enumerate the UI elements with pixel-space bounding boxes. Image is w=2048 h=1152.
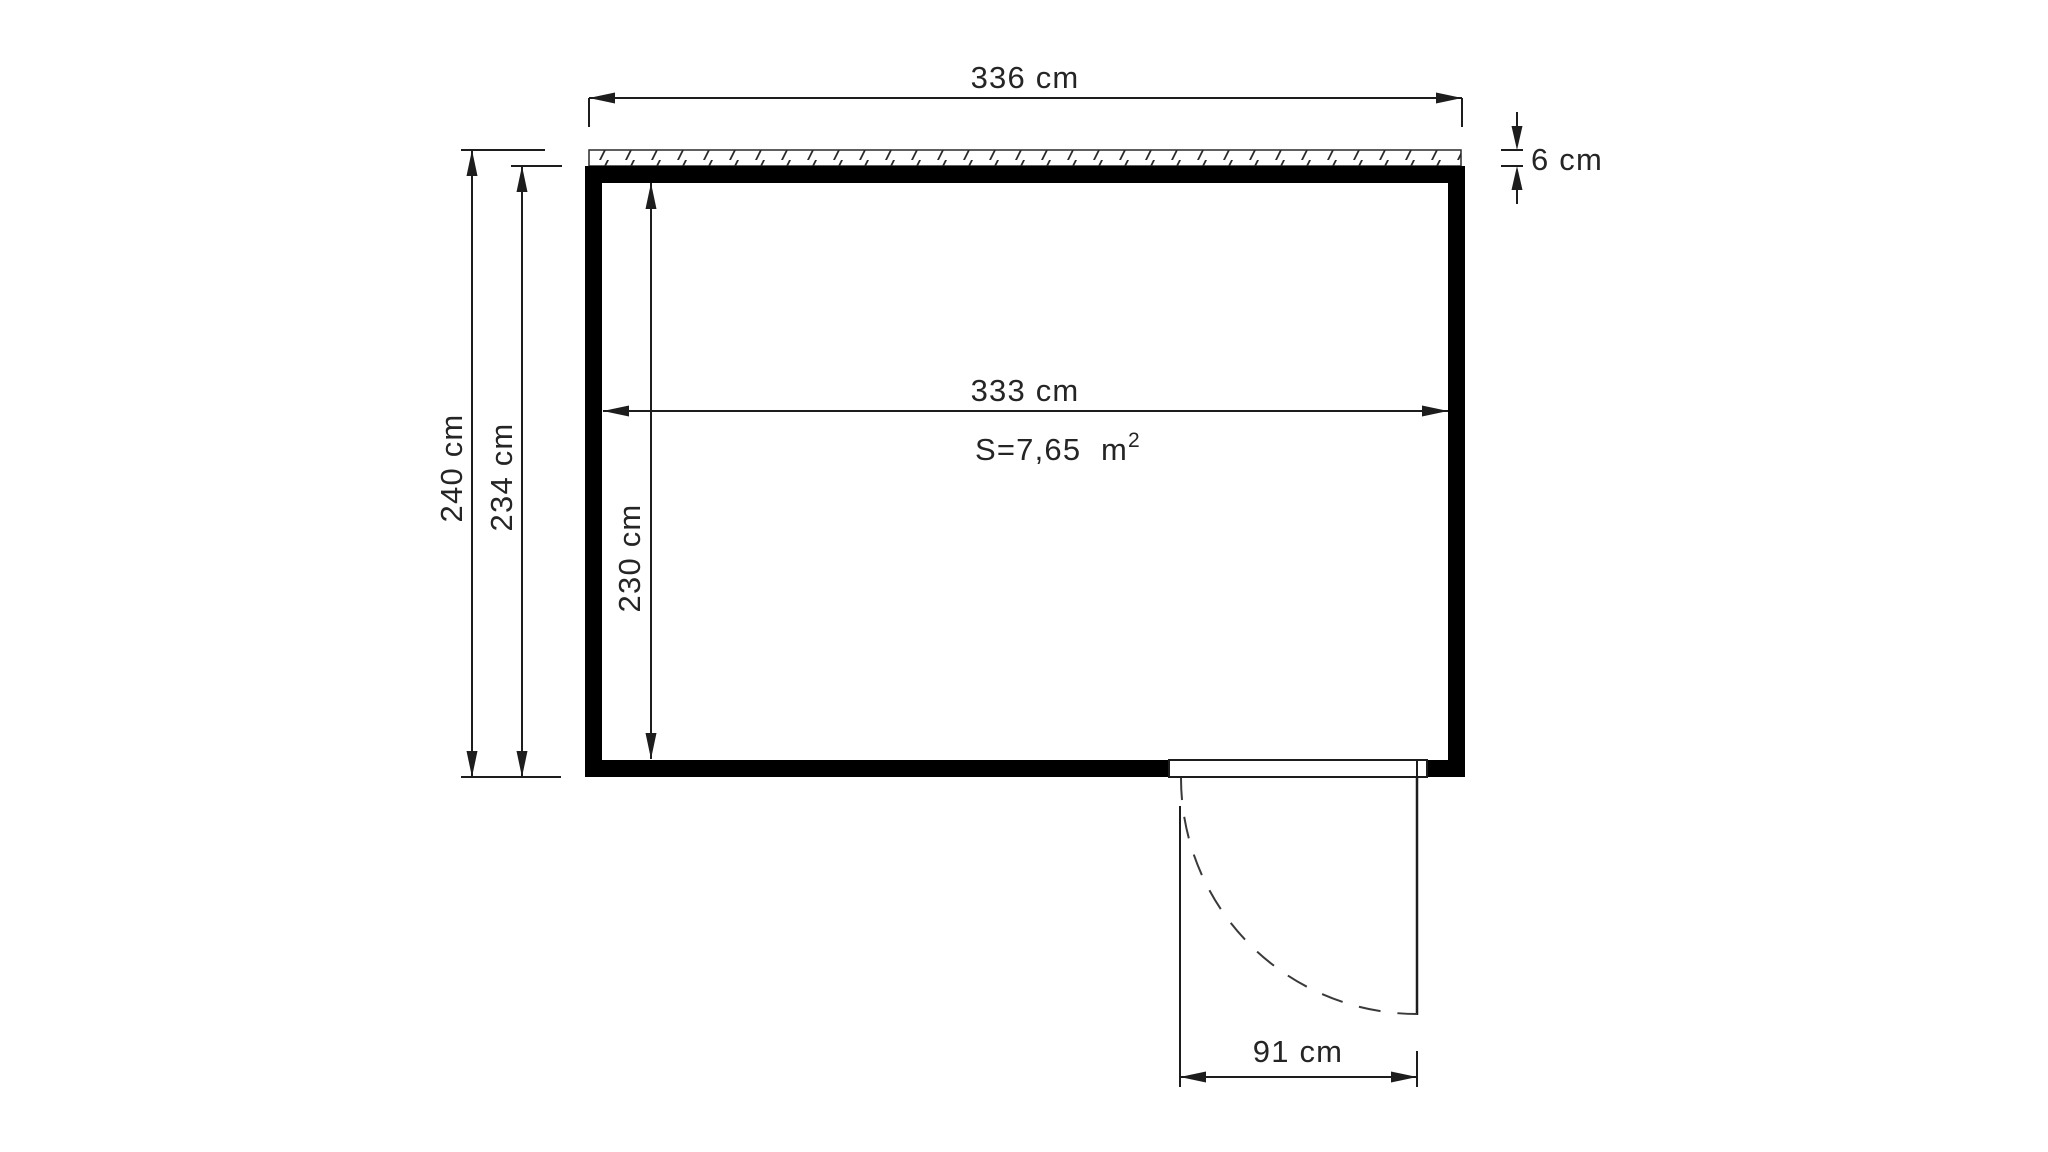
wall-right	[1448, 166, 1465, 777]
dim-overhang: 6 cm	[1501, 112, 1603, 204]
dim-mid-depth-label: 234 cm	[484, 423, 519, 532]
arrow-right-icon	[1391, 1072, 1417, 1083]
dim-overhang-label: 6 cm	[1531, 142, 1603, 177]
wall-left	[585, 166, 602, 777]
hatch-strip	[589, 150, 1461, 166]
arrow-up-icon	[467, 150, 478, 176]
wall-bottom-right-segment	[1427, 760, 1465, 777]
arrow-left-icon	[603, 406, 629, 417]
arrow-left-icon	[589, 93, 615, 104]
dim-outer-depth-label: 240 cm	[434, 414, 469, 523]
floorplan-canvas: 336 cm 6 cm 240 cm 234 cm	[0, 0, 2048, 1152]
roof-overhang-strip	[589, 150, 1461, 166]
dim-outer-width: 336 cm	[589, 60, 1462, 127]
wall-top	[585, 166, 1465, 183]
arrow-up-icon	[646, 183, 657, 209]
arrow-up-icon	[517, 166, 528, 192]
area-label-superscript: 2	[1128, 429, 1140, 452]
area-label: S=7,65 m2	[975, 429, 1140, 467]
arrow-up-icon	[1512, 166, 1523, 190]
dim-outer-width-label: 336 cm	[971, 60, 1080, 95]
area-label-main: S=7,65 m	[975, 432, 1128, 467]
arrow-down-icon	[517, 751, 528, 777]
walls	[585, 166, 1465, 777]
door-swing-arc	[1181, 778, 1417, 1014]
dim-door-width-label: 91 cm	[1253, 1034, 1343, 1069]
arrow-down-icon	[646, 733, 657, 759]
arrow-right-icon	[1436, 93, 1462, 104]
arrow-right-icon	[1422, 406, 1448, 417]
dim-inner-depth-label: 230 cm	[612, 504, 647, 613]
shed-floorplan-drawing: 336 cm 6 cm 240 cm 234 cm	[0, 0, 2048, 1152]
door-threshold	[1169, 760, 1427, 777]
arrow-down-icon	[467, 751, 478, 777]
wall-bottom-left-segment	[585, 760, 1169, 777]
dim-door-width: 91 cm	[1180, 806, 1417, 1087]
dim-mid-depth: 234 cm	[484, 166, 562, 777]
dim-inner-depth: 230 cm	[612, 183, 657, 759]
dim-inner-width-label: 333 cm	[971, 373, 1080, 408]
arrow-left-icon	[1180, 1072, 1206, 1083]
arrow-down-icon	[1512, 126, 1523, 150]
door	[1169, 760, 1427, 1015]
dim-inner-width: 333 cm S=7,65 m2	[603, 373, 1448, 467]
